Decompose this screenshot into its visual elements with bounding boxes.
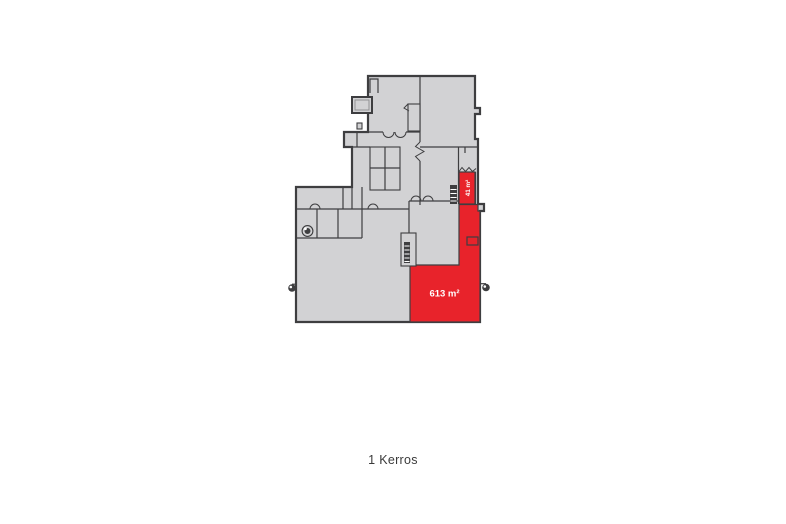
- stairs-icon: [404, 242, 410, 263]
- narrow-room: [408, 104, 420, 131]
- unit-613-label: 613 m²: [429, 289, 459, 300]
- stairs-icon: [450, 185, 457, 204]
- small-exterior-box: [357, 123, 362, 129]
- unit-41-area[interactable]: 41 m²: [459, 172, 475, 204]
- section-marker-icon: [481, 284, 490, 292]
- floor-label: 1 Kerros: [0, 453, 786, 467]
- unit-613-door-notch: [467, 237, 478, 245]
- floorplan-svg: 613 m² 41 m²: [0, 0, 786, 524]
- spiral-staircase-icon: [302, 226, 313, 237]
- unit-41-label: 41 m²: [465, 180, 472, 196]
- floorplan-canvas: 613 m² 41 m²: [0, 0, 786, 524]
